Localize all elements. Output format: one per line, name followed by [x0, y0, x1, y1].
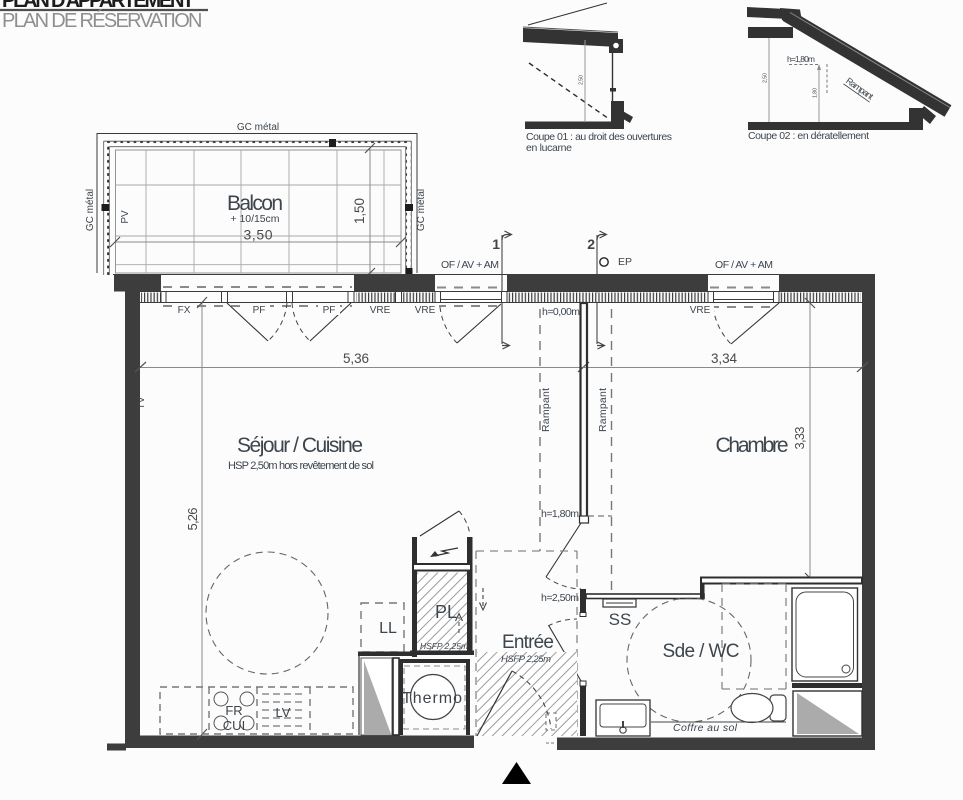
- svg-text:+ 10/15cm: + 10/15cm: [231, 213, 280, 225]
- svg-text:PF: PF: [323, 305, 336, 316]
- svg-text:VRE: VRE: [415, 305, 436, 316]
- svg-text:3,33: 3,33: [792, 427, 807, 450]
- svg-text:PL: PL: [435, 602, 457, 622]
- svg-text:2,50: 2,50: [763, 73, 769, 83]
- svg-text:en lucarne: en lucarne: [526, 142, 572, 154]
- svg-text:Chambre: Chambre: [716, 434, 789, 457]
- svg-text:Entrée: Entrée: [502, 632, 554, 653]
- svg-text:VRE: VRE: [370, 305, 391, 316]
- svg-text:Thermo: Thermo: [402, 690, 462, 707]
- svg-text:GC métal: GC métal: [237, 122, 279, 133]
- svg-text:GC métal: GC métal: [85, 189, 96, 231]
- svg-text:1,50: 1,50: [352, 198, 367, 224]
- svg-text:LV: LV: [276, 705, 291, 720]
- svg-text:Sde / WC: Sde / WC: [663, 641, 740, 662]
- svg-text:h=2,50m: h=2,50m: [541, 592, 579, 604]
- svg-text:Rampant: Rampant: [540, 388, 552, 432]
- svg-text:Séjour / Cuisine: Séjour / Cuisine: [237, 434, 363, 457]
- svg-text:5,26: 5,26: [185, 508, 200, 531]
- svg-text:CUI: CUI: [223, 718, 245, 733]
- svg-text:OF / AV + AM: OF / AV + AM: [715, 259, 773, 271]
- svg-text:2: 2: [587, 236, 595, 252]
- svg-text:h=0,00m: h=0,00m: [542, 306, 580, 318]
- svg-text:LL: LL: [379, 620, 397, 637]
- svg-text:SS: SS: [609, 610, 632, 629]
- svg-text:HSFP 2,25m: HSFP 2,25m: [501, 654, 551, 665]
- svg-text:Coffre au sol: Coffre au sol: [673, 722, 738, 734]
- svg-text:h=1,80m: h=1,80m: [787, 54, 815, 64]
- svg-text:HSP 2,50m hors revêtement de s: HSP 2,50m hors revêtement de sol: [228, 460, 374, 472]
- svg-text:PF: PF: [253, 305, 266, 316]
- svg-text:2,50: 2,50: [579, 75, 585, 85]
- svg-text:1,80: 1,80: [813, 88, 819, 98]
- svg-text:HSFP 2,25m: HSFP 2,25m: [420, 641, 468, 651]
- svg-text:FX: FX: [178, 305, 191, 316]
- svg-text:GC métal: GC métal: [416, 189, 427, 231]
- svg-text:VRE: VRE: [690, 305, 711, 316]
- svg-text:5,36: 5,36: [343, 351, 369, 366]
- svg-text:TV: TV: [136, 396, 147, 409]
- svg-text:1: 1: [492, 236, 500, 252]
- svg-text:3,34: 3,34: [711, 351, 737, 366]
- svg-text:3,50: 3,50: [244, 227, 273, 243]
- svg-text:PLAN DE RÉSERVATION: PLAN DE RÉSERVATION: [2, 9, 204, 32]
- svg-text:Rampant: Rampant: [597, 388, 609, 432]
- svg-text:h=1,80m: h=1,80m: [541, 508, 579, 520]
- svg-text:Coupe 02 : en dératellement: Coupe 02 : en dératellement: [748, 130, 869, 142]
- svg-text:Balcon: Balcon: [227, 192, 283, 215]
- svg-text:FR: FR: [225, 703, 242, 718]
- svg-text:EP: EP: [618, 256, 632, 268]
- svg-text:OF / AV + AM: OF / AV + AM: [441, 259, 499, 271]
- svg-text:PV: PV: [120, 210, 131, 224]
